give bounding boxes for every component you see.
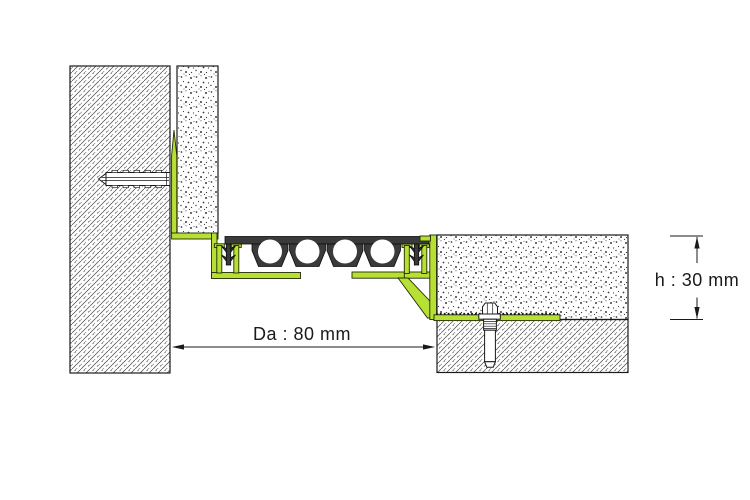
rubber-hole <box>371 240 395 264</box>
cross-section-drawing: Da : 80 mm h : 30 mm <box>0 0 750 500</box>
floor-slab <box>437 320 628 373</box>
profile-vertical-leg <box>430 235 437 320</box>
rubber-hole <box>258 240 282 264</box>
bolt-hex-head <box>483 303 498 314</box>
profile-wall-leg <box>172 130 177 234</box>
profile-horizontal-flange <box>352 272 409 278</box>
bolt-washer <box>479 314 501 319</box>
wall-finish-stipple <box>177 66 218 234</box>
floor-screed <box>437 235 628 320</box>
technical-drawing-canvas: Da : 80 mm h : 30 mm <box>0 0 750 500</box>
channel-wall-left <box>404 246 409 274</box>
rubber-hole <box>333 240 357 264</box>
profile-top-hook <box>420 236 431 241</box>
profile-face-drop <box>212 233 218 278</box>
profile-base-flange <box>212 273 301 279</box>
channel-wall-right <box>234 246 239 274</box>
profile-under-finish-flange <box>172 233 218 239</box>
rubber-top-band <box>225 237 429 245</box>
channel-wall-right <box>422 246 427 274</box>
wall-finish-layer <box>177 66 218 234</box>
rubber-hole <box>296 240 320 264</box>
wall-section <box>70 66 170 373</box>
channel-wall-left <box>217 246 222 274</box>
bolt-tip <box>485 362 496 368</box>
floor-section <box>437 235 628 373</box>
wall-anchor-dowel <box>99 170 171 187</box>
bolt-shaft <box>485 330 496 362</box>
wall-hatched-body <box>70 66 170 373</box>
dimension-label-da: Da : 80 mm <box>253 324 351 344</box>
dimension-label-h: h : 30 mm <box>655 270 740 290</box>
dowel-body <box>106 173 170 186</box>
